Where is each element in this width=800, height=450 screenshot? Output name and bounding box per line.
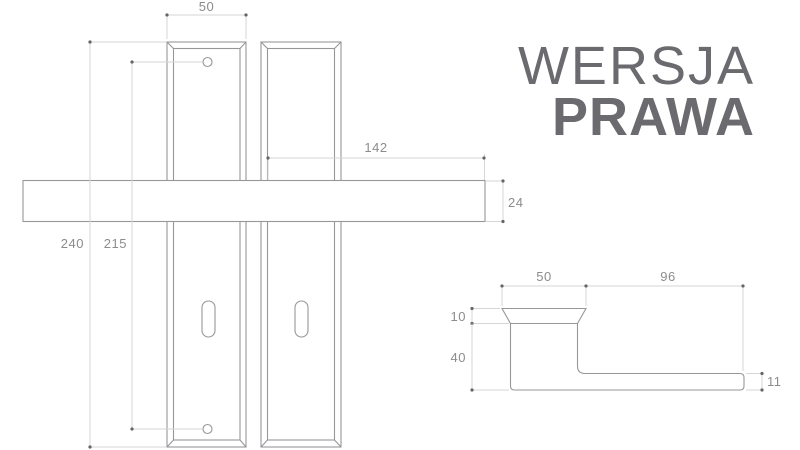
title-line-2: PRAWA xyxy=(552,87,755,147)
left-backplate xyxy=(167,42,246,447)
dim-handle-length: 142 xyxy=(266,140,485,180)
dim-rose-height: 10 xyxy=(451,307,509,325)
dimension-dot xyxy=(482,156,485,159)
dimension-dot xyxy=(760,372,763,375)
right-plate-outer-edge xyxy=(261,42,341,447)
dimension-dot xyxy=(501,179,504,182)
dimension-dot xyxy=(130,427,133,430)
dimension-label: 96 xyxy=(660,269,675,284)
dimension-label: 215 xyxy=(104,236,127,251)
dimension-dot xyxy=(244,13,247,16)
dimension-dot xyxy=(760,388,763,391)
bevel-corner-line xyxy=(167,42,174,49)
technical-drawing: 50 240 215 142 xyxy=(0,0,800,450)
dimension-dot xyxy=(88,40,91,43)
bevel-corner-line xyxy=(261,42,268,49)
bevel-corner-line xyxy=(335,440,342,447)
dimension-dot xyxy=(741,284,744,287)
dimension-dot xyxy=(130,60,133,63)
dimension-dot xyxy=(470,307,473,310)
dimension-label: 142 xyxy=(364,140,387,155)
bevel-corner-line xyxy=(261,440,268,447)
dimension-label: 24 xyxy=(508,195,523,210)
bevel-corner-line xyxy=(335,42,342,49)
dimension-dot xyxy=(470,388,473,391)
dimension-dot xyxy=(501,220,504,223)
keyhole-slot xyxy=(202,301,215,337)
version-title: WERSJA PRAWA xyxy=(518,36,755,147)
bottom-screw-hole xyxy=(203,425,212,434)
dim-lever-length: 96 xyxy=(584,269,744,371)
bevel-corner-line xyxy=(240,440,246,447)
dimension-dot xyxy=(88,445,91,448)
dim-neck-height: 40 xyxy=(451,324,509,392)
dimension-label: 240 xyxy=(61,236,84,251)
dimension-dot xyxy=(165,13,168,16)
handle-lever-front xyxy=(23,181,485,222)
top-screw-hole xyxy=(203,58,212,67)
dimension-dot xyxy=(500,284,503,287)
rose-profile xyxy=(502,309,586,324)
dimension-dot xyxy=(266,156,269,159)
dimension-label: 11 xyxy=(767,374,782,389)
bevel-corner-line xyxy=(240,42,246,49)
dimension-label: 40 xyxy=(451,350,466,365)
dim-lever-end-thickness: 11 xyxy=(746,372,782,392)
right-backplate xyxy=(261,42,341,447)
dimension-label: 10 xyxy=(451,309,466,324)
front-view: 50 240 215 142 xyxy=(23,0,523,449)
dimension-label: 50 xyxy=(199,0,214,14)
dim-rose-width: 50 xyxy=(500,269,586,306)
lever-profile xyxy=(511,324,745,391)
right-plate-bevel-edge xyxy=(268,49,335,441)
dimension-dot xyxy=(584,284,587,287)
side-view: 50 96 10 40 xyxy=(451,269,782,392)
dim-plate-width: 50 xyxy=(165,0,247,39)
left-plate-bevel-edge xyxy=(174,49,241,441)
bevel-corner-line xyxy=(167,440,174,447)
dim-screw-hole-spacing: 215 xyxy=(104,60,202,430)
keyhole-slot xyxy=(295,301,308,337)
dimension-label: 50 xyxy=(536,269,551,284)
dim-handle-thickness: 24 xyxy=(486,179,523,223)
left-plate-outer-edge xyxy=(167,42,246,447)
